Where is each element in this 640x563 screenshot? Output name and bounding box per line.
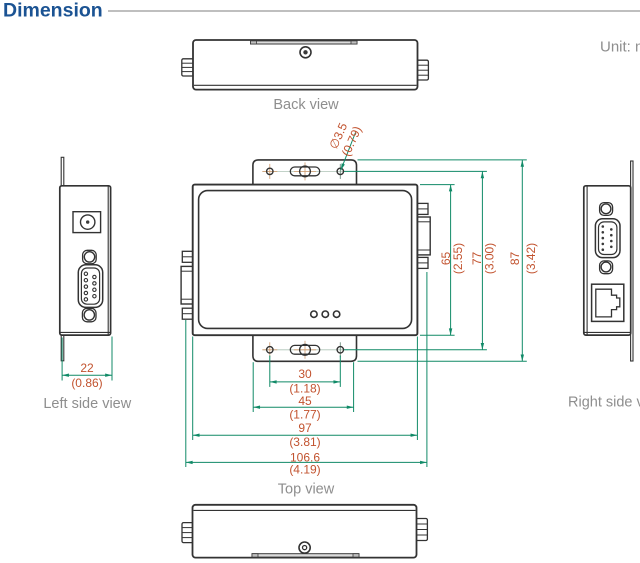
svg-text:87: 87 [508,252,522,266]
svg-text:(3.00): (3.00) [482,243,496,274]
svg-text:(1.77): (1.77) [289,407,320,421]
svg-text:Left side view: Left side view [43,396,131,412]
svg-text:(3.42): (3.42) [524,243,538,274]
svg-text:Dimension: Dimension [3,0,103,22]
svg-text:Back view: Back view [273,97,339,113]
svg-text:(0.86): (0.86) [71,376,102,390]
svg-text:Right side view: Right side view [568,395,640,411]
svg-text:(2.55): (2.55) [451,243,465,274]
svg-text:Top view: Top view [278,482,335,498]
svg-text:97: 97 [298,421,312,435]
svg-text:30: 30 [298,367,312,381]
svg-text:(3.81): (3.81) [289,435,320,449]
svg-text:45: 45 [298,394,312,408]
svg-text:Unit: mm (inch): Unit: mm (inch) [600,39,640,56]
svg-text:22: 22 [80,361,94,375]
svg-text:(4.19): (4.19) [289,462,320,476]
